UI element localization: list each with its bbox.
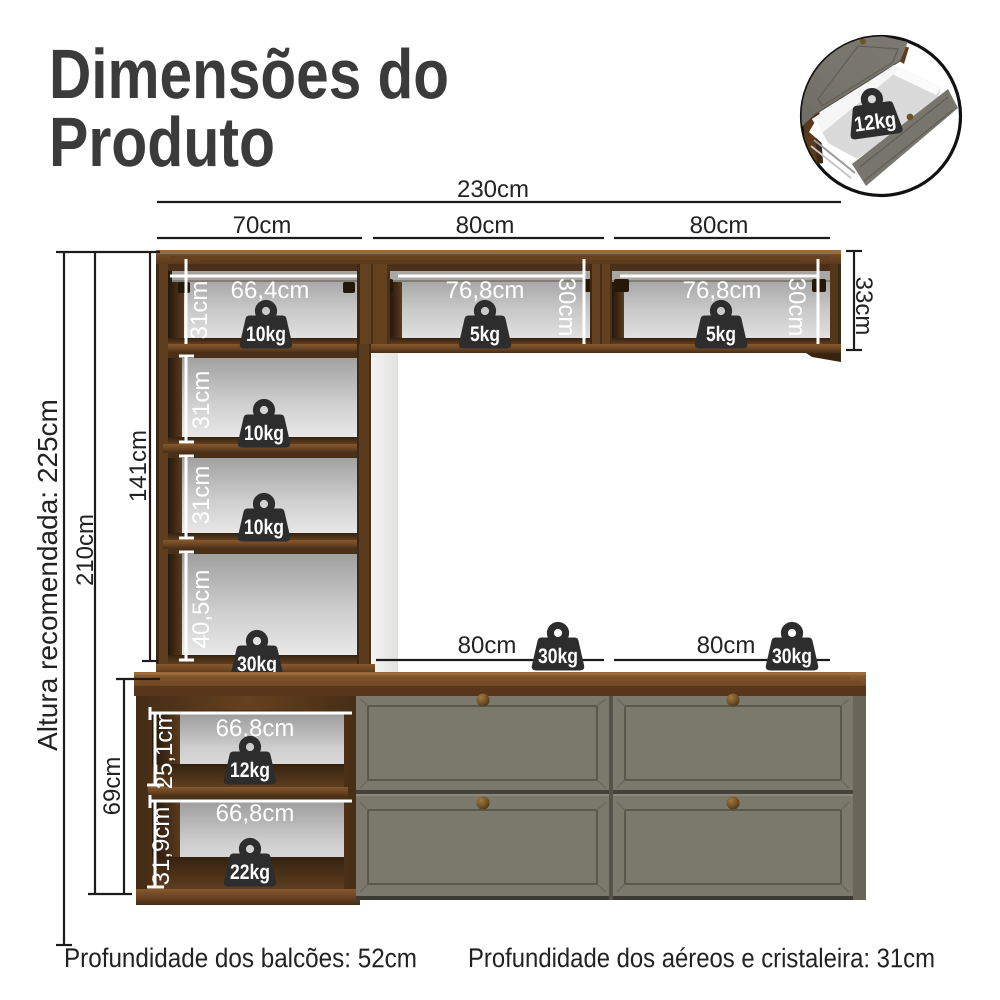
svg-text:Profundidade dos balcões: 52cm: Profundidade dos balcões: 52cm bbox=[64, 943, 417, 973]
svg-text:30cm: 30cm bbox=[783, 278, 810, 337]
svg-text:12kg: 12kg bbox=[230, 759, 270, 782]
svg-text:Altura recomendada: 225cm: Altura recomendada: 225cm bbox=[32, 399, 63, 751]
svg-text:31cm: 31cm bbox=[186, 281, 213, 340]
svg-text:Produto: Produto bbox=[49, 103, 275, 181]
svg-text:80cm: 80cm bbox=[456, 212, 515, 239]
svg-text:80cm: 80cm bbox=[690, 212, 749, 239]
svg-text:31cm: 31cm bbox=[188, 466, 215, 525]
svg-text:30kg: 30kg bbox=[772, 645, 812, 668]
svg-text:80cm: 80cm bbox=[458, 632, 517, 659]
svg-text:25,1cm: 25,1cm bbox=[151, 711, 178, 790]
svg-text:31,9cm: 31,9cm bbox=[148, 807, 175, 886]
svg-text:33cm: 33cm bbox=[850, 277, 877, 336]
svg-text:Profundidade dos aéreos e cris: Profundidade dos aéreos e cristaleira: 3… bbox=[468, 943, 935, 973]
svg-text:30cm: 30cm bbox=[553, 278, 580, 337]
svg-text:Dimensões do: Dimensões do bbox=[49, 35, 449, 113]
svg-text:80cm: 80cm bbox=[697, 632, 756, 659]
svg-text:10kg: 10kg bbox=[244, 422, 284, 445]
svg-text:30kg: 30kg bbox=[538, 645, 578, 668]
svg-text:70cm: 70cm bbox=[233, 212, 292, 239]
svg-text:5kg: 5kg bbox=[470, 323, 500, 346]
svg-text:210cm: 210cm bbox=[72, 514, 99, 586]
svg-text:66,8cm: 66,8cm bbox=[216, 800, 295, 827]
svg-text:66,4cm: 66,4cm bbox=[231, 277, 310, 304]
svg-text:141cm: 141cm bbox=[125, 430, 152, 502]
svg-text:31cm: 31cm bbox=[188, 371, 215, 430]
svg-text:5kg: 5kg bbox=[706, 323, 736, 346]
svg-text:69cm: 69cm bbox=[99, 757, 126, 816]
svg-text:230cm: 230cm bbox=[457, 176, 529, 203]
svg-text:10kg: 10kg bbox=[244, 516, 284, 539]
svg-text:40,5cm: 40,5cm bbox=[188, 570, 215, 649]
svg-text:22kg: 22kg bbox=[230, 861, 270, 884]
svg-text:10kg: 10kg bbox=[246, 323, 286, 346]
